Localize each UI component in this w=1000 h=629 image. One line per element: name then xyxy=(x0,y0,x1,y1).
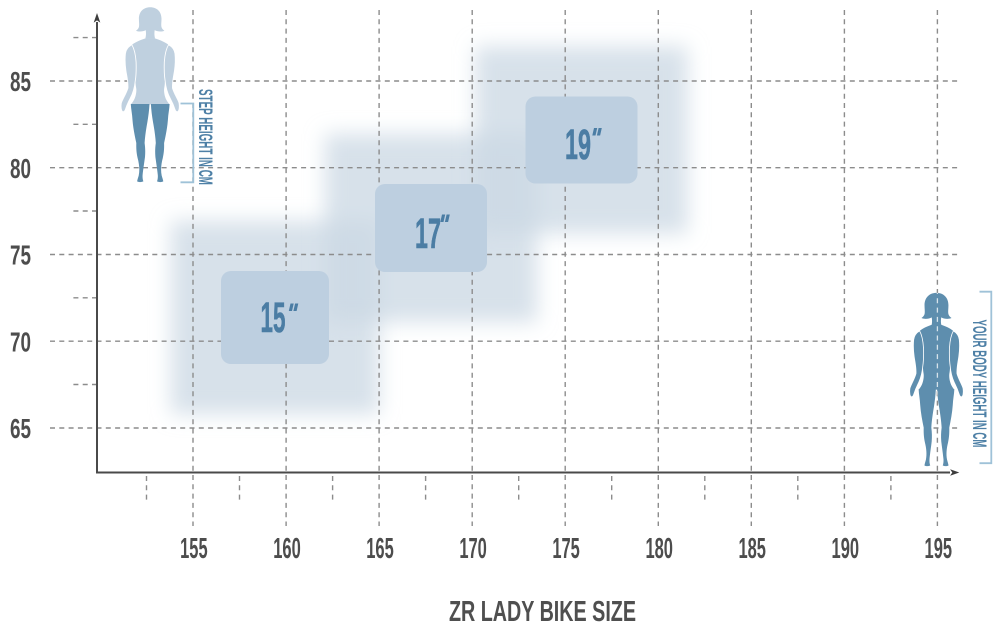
svg-text:80: 80 xyxy=(10,153,31,184)
svg-text:85: 85 xyxy=(10,66,31,97)
svg-text:65: 65 xyxy=(10,413,31,444)
svg-text:15: 15 xyxy=(261,294,286,342)
svg-text:185: 185 xyxy=(738,533,766,565)
svg-text:190: 190 xyxy=(832,533,860,565)
svg-text:160: 160 xyxy=(273,533,301,565)
svg-text:170: 170 xyxy=(459,533,487,565)
svg-text:19: 19 xyxy=(565,121,591,169)
svg-text:70: 70 xyxy=(10,326,31,357)
svg-text:165: 165 xyxy=(366,533,394,565)
svg-text:YOUR BODY HEIGHT IN CM: YOUR BODY HEIGHT IN CM xyxy=(968,320,989,448)
svg-text:STEP HEIGHT IN CM: STEP HEIGHT IN CM xyxy=(194,89,215,185)
svg-text:75: 75 xyxy=(10,240,31,271)
svg-text:ZR LADY BIKE SIZE: ZR LADY BIKE SIZE xyxy=(449,596,636,628)
svg-text:155: 155 xyxy=(180,533,208,565)
svg-text:175: 175 xyxy=(552,533,580,565)
svg-text:195: 195 xyxy=(925,533,953,565)
svg-text:180: 180 xyxy=(645,533,673,565)
svg-text:17: 17 xyxy=(415,210,441,258)
